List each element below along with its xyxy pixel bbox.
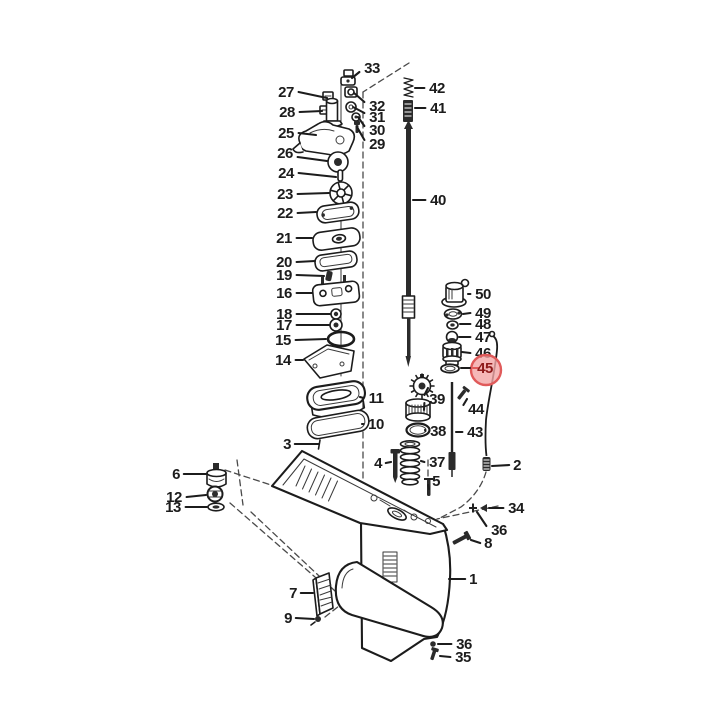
callout-label-7: 7: [289, 585, 297, 602]
part-17-seal: [330, 319, 342, 331]
part-7-anode-plate: [313, 573, 333, 616]
part-4-bolt: [391, 449, 401, 483]
part-39-bearing: [406, 399, 430, 421]
part-35-screw: [428, 647, 439, 661]
part-34-fitting: [480, 504, 487, 512]
callout-14: 14: [275, 352, 303, 369]
callout-43: 43: [456, 424, 483, 441]
callout-label-45: 45: [477, 360, 493, 377]
callout-28: 28: [279, 104, 322, 121]
callout-label-11: 11: [369, 390, 384, 407]
callout-label-4: 4: [374, 455, 383, 472]
callout-label-13: 13: [165, 499, 181, 516]
callout-24: 24: [278, 165, 336, 182]
callout-label-2: 2: [513, 457, 521, 474]
callout-label-14: 14: [275, 352, 292, 369]
callout-7: 7: [289, 585, 313, 602]
callout-label-15: 15: [275, 332, 291, 349]
part-45-washer: [441, 364, 459, 372]
part-13-washer: [208, 503, 224, 511]
dashed-left-vertical: [237, 460, 243, 505]
part-49-tab-washer: [445, 309, 462, 319]
callout-34: 34: [489, 500, 525, 517]
callout-16: 16: [276, 285, 312, 302]
callout-47: 47: [459, 329, 491, 346]
callout-label-23: 23: [277, 186, 293, 203]
callout-6: 6: [172, 466, 206, 483]
part-6-anode: [207, 463, 226, 487]
callout-label-5: 5: [432, 473, 440, 490]
callout-label-43: 43: [467, 424, 483, 441]
callout-label-28: 28: [279, 104, 295, 121]
callout-40: 40: [413, 192, 446, 209]
callout-label-26: 26: [277, 145, 293, 162]
callout-label-42: 42: [429, 80, 445, 97]
callout-21: 21: [276, 230, 312, 247]
callout-4: 4: [374, 455, 391, 472]
callout-22: 22: [277, 205, 316, 222]
callout-9: 9: [284, 610, 314, 627]
part-23-impeller: [330, 182, 352, 204]
callout-13: 13: [165, 499, 207, 516]
callout-label-41: 41: [430, 100, 446, 117]
water-pump-stack: [293, 70, 370, 440]
part-50-bearing-housing: [442, 280, 469, 308]
callout-label-36: 36: [491, 522, 507, 539]
part-43-shift-rod: [449, 382, 456, 477]
callout-45: 45: [461, 355, 501, 385]
callout-15: 15: [275, 332, 326, 349]
callout-label-27: 27: [278, 84, 294, 101]
housing-slot-hatch: [383, 552, 397, 582]
part-22-plate: [316, 201, 360, 224]
callout-42: 42: [415, 80, 445, 97]
callout-label-35: 35: [455, 649, 471, 666]
right-parts-column: [441, 280, 470, 478]
gearcase-housing: [272, 440, 450, 661]
driveshaft-column: [403, 78, 415, 367]
part-14-gasket: [304, 345, 354, 378]
part-10-gasket: [306, 409, 371, 440]
callout-label-22: 22: [277, 205, 293, 222]
part-18-washer: [331, 309, 341, 319]
callout-8: 8: [471, 535, 492, 552]
callout-label-10: 10: [368, 416, 384, 433]
dashed-to-anode: [230, 503, 315, 577]
callout-label-8: 8: [484, 535, 492, 552]
part-41-pin: [403, 100, 413, 122]
callout-label-33: 33: [364, 60, 380, 77]
part-26-insert: [328, 152, 348, 172]
pinion-gear-stack: [391, 374, 435, 496]
callout-label-24: 24: [278, 165, 295, 182]
part-46-bushing: [443, 343, 461, 366]
callout-label-50: 50: [475, 286, 491, 303]
callout-label-34: 34: [508, 500, 525, 517]
part-48-washer: [447, 321, 458, 329]
callout-36: 36: [477, 512, 507, 539]
callout-23: 23: [277, 186, 329, 203]
callout-2: 2: [492, 457, 521, 474]
callout-label-25: 25: [278, 125, 294, 142]
part-24-key: [338, 170, 343, 181]
part-32-nut: [345, 87, 357, 97]
part-8-screw: [451, 531, 472, 548]
callout-label-9: 9: [284, 610, 292, 627]
part-19-gasket: [325, 270, 333, 281]
callout-1: 1: [449, 571, 477, 588]
callout-label-3: 3: [283, 436, 291, 453]
callout-label-44: 44: [468, 401, 485, 418]
callout-label-16: 16: [276, 285, 292, 302]
part-25-pump-cover: [293, 122, 354, 155]
callout-33: 33: [352, 60, 380, 78]
callout-label-6: 6: [172, 466, 180, 483]
callout-41: 41: [415, 100, 446, 117]
part-42-spring: [404, 78, 413, 97]
callout-label-40: 40: [430, 192, 446, 209]
part-21-gasket: [312, 227, 361, 251]
callout-label-19: 19: [276, 267, 292, 284]
callout-35: 35: [440, 649, 471, 666]
callout-label-38: 38: [430, 423, 446, 440]
callout-label-47: 47: [475, 329, 491, 346]
callout-50: 50: [468, 286, 491, 303]
callout-19: 19: [276, 267, 324, 284]
housing-top-plate: [272, 451, 447, 534]
part-12-locknut: [208, 487, 223, 502]
callout-27: 27: [278, 84, 327, 101]
part-37-spring: [401, 441, 420, 485]
callout-37: 37: [421, 454, 445, 471]
dashed-left-upper: [225, 470, 271, 485]
part-16-pump-base: [312, 275, 360, 306]
part-47-cap-nut: [447, 332, 458, 343]
part-36-screw-lower: [430, 641, 436, 647]
callout-label-29: 29: [369, 136, 385, 153]
part-20-plate: [314, 250, 358, 272]
callout-label-1: 1: [469, 571, 477, 588]
part-9-screw: [311, 616, 321, 625]
callout-label-39: 39: [429, 391, 445, 408]
callout-label-21: 21: [276, 230, 292, 247]
callout-label-37: 37: [429, 454, 445, 471]
callout-44: 44: [463, 399, 485, 418]
part-40-driveshaft: [403, 120, 415, 367]
exploded-diagram-canvas: 2728252624232221201916181715143612137933…: [0, 0, 720, 720]
